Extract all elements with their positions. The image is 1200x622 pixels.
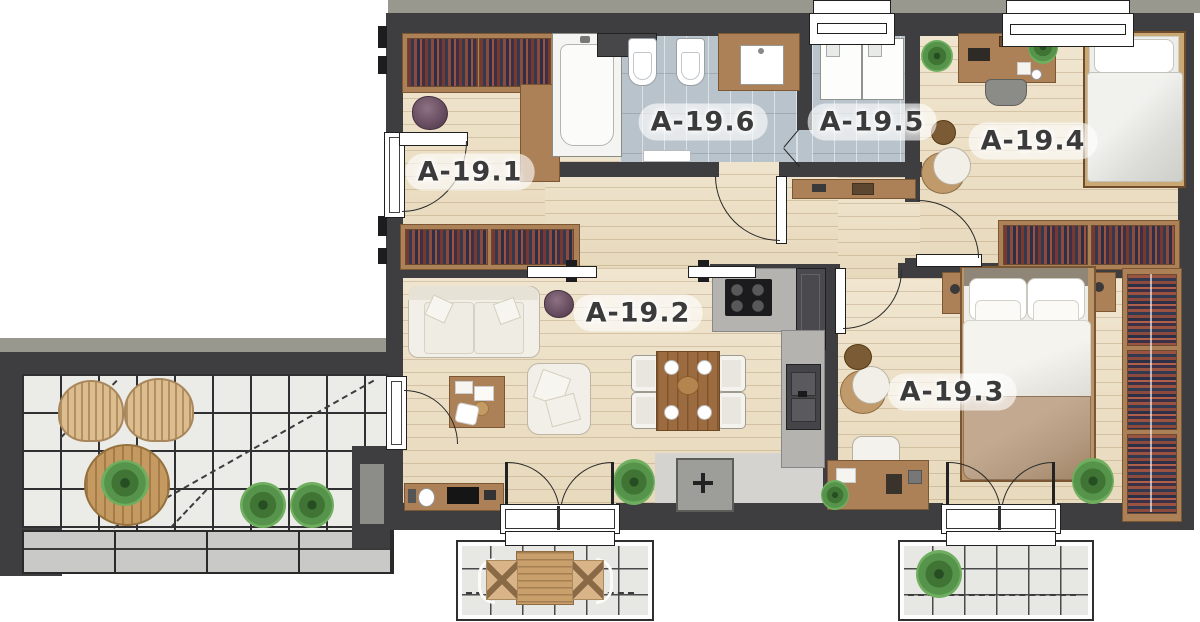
desk-paper — [1017, 62, 1031, 75]
wall — [797, 162, 922, 177]
floor-plan: A-19.1 A-19.2 A-19.3 A-19.4 A-19.5 A-19.… — [0, 0, 1200, 622]
wardrobe-clothes — [491, 229, 574, 265]
cooktop — [725, 279, 772, 316]
terrace-chair — [572, 560, 604, 600]
console-item — [484, 490, 496, 500]
wardrobe-clothes — [1127, 350, 1177, 430]
washbasin-faucet — [758, 48, 764, 54]
wall — [388, 352, 403, 379]
office-chair — [985, 79, 1027, 106]
armchair — [933, 147, 971, 185]
wardrobe-clothes — [1091, 225, 1175, 265]
door-sill — [505, 531, 615, 546]
plate — [697, 405, 712, 420]
french-door-frame-inner — [946, 509, 1056, 529]
plant — [921, 40, 953, 72]
bathtub-faucet — [580, 36, 590, 43]
bath-mat — [643, 150, 691, 162]
wardrobe-clothes — [407, 38, 478, 87]
wall-stub — [378, 248, 387, 264]
toilet-seat — [633, 52, 652, 80]
sliding-door — [688, 266, 756, 278]
table-paper — [455, 381, 473, 394]
balcony-niche-inner — [360, 464, 384, 524]
plant — [1072, 458, 1114, 504]
wall — [0, 352, 403, 374]
tv — [447, 487, 479, 504]
speaker — [418, 488, 435, 507]
wall-stub — [378, 26, 387, 48]
french-door-frame-inner — [505, 509, 615, 529]
armchair — [852, 366, 890, 404]
wardrobe-clothes — [405, 229, 488, 265]
room-label-a-19-6: A-19.6 — [639, 104, 768, 141]
sliding-door — [527, 266, 597, 278]
desk-cup — [1031, 69, 1042, 80]
dining-chair — [717, 392, 746, 429]
plant — [290, 482, 334, 528]
washing-machine-door — [868, 44, 882, 57]
toilet-seat — [681, 52, 700, 80]
sink-basin — [791, 398, 816, 422]
beanbag — [412, 96, 448, 130]
side-table — [844, 344, 872, 370]
balcony-chair — [124, 378, 194, 442]
room-label-a-19-4: A-19.4 — [969, 123, 1098, 160]
wall — [388, 448, 403, 508]
window-bar — [817, 23, 887, 34]
french-door-mullion — [557, 506, 560, 530]
plant — [240, 482, 286, 528]
plant — [821, 480, 849, 510]
wall — [545, 162, 719, 177]
desk-item — [908, 470, 922, 484]
wardrobe-clothes — [1003, 225, 1088, 265]
bed-duvet — [1087, 72, 1183, 182]
dining-chair — [717, 355, 746, 392]
french-door-mullion — [998, 506, 1001, 530]
desk-books — [968, 48, 990, 61]
plate — [697, 360, 712, 375]
room-label-a-19-1: A-19.1 — [406, 154, 535, 191]
terrace-table — [516, 551, 574, 605]
balcony-railing — [22, 530, 394, 574]
wardrobe-clothes — [1127, 434, 1177, 514]
lamp — [950, 284, 960, 294]
console-item — [852, 183, 874, 195]
wall-stub — [378, 56, 387, 74]
table-chair — [454, 402, 480, 426]
desk-books — [886, 474, 902, 494]
doorway-tile — [797, 128, 812, 162]
kitchen-island — [676, 458, 734, 512]
wall-stub — [378, 216, 387, 236]
beanbag — [544, 290, 574, 318]
island-plus-icon — [701, 473, 705, 493]
console-item — [408, 489, 416, 503]
room-label-a-19-5: A-19.5 — [808, 104, 937, 141]
terrace-chair — [486, 560, 518, 600]
plate — [664, 360, 679, 375]
wardrobe-rail — [1150, 274, 1152, 512]
sink-faucet — [798, 391, 807, 397]
door-sill — [946, 531, 1056, 546]
plant — [613, 459, 655, 505]
washing-machine-door — [826, 44, 840, 57]
plate — [664, 405, 679, 420]
room-label-a-19-3: A-19.3 — [888, 374, 1017, 411]
console-item — [812, 184, 826, 192]
wardrobe-clothes — [479, 38, 551, 87]
serving-bowl — [677, 376, 699, 395]
sofa-back — [408, 286, 538, 300]
plant — [101, 460, 149, 506]
wall — [386, 13, 403, 136]
plant — [916, 550, 962, 598]
bathtub-basin — [560, 44, 614, 146]
table-paper — [474, 386, 494, 401]
room-label-a-19-2: A-19.2 — [574, 295, 703, 332]
balcony-exterior-edge — [0, 338, 390, 352]
wardrobe-clothes — [1127, 274, 1177, 346]
balcony-chair — [58, 380, 124, 442]
window-bar — [1010, 24, 1126, 35]
